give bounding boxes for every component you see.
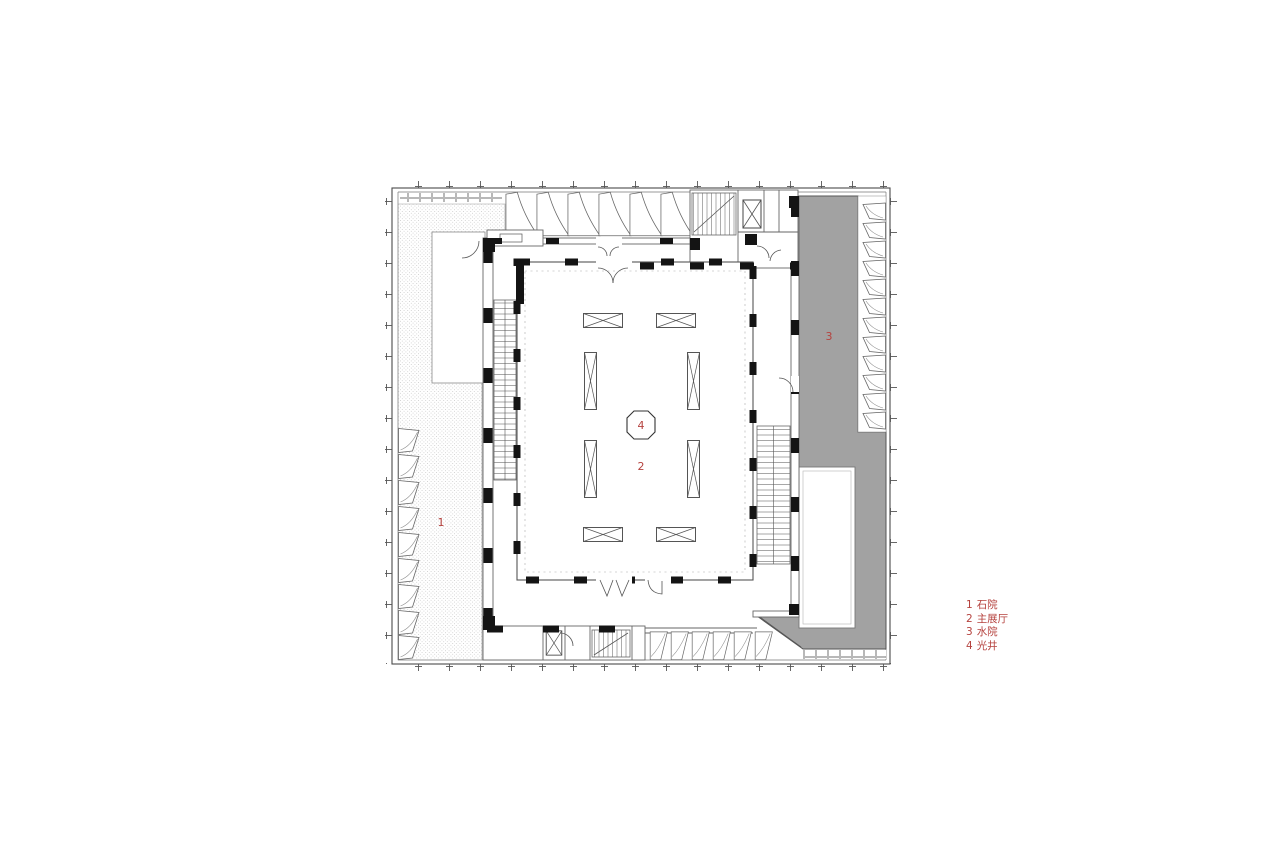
label-main-hall: 2 [638,460,645,473]
legend-item-main-hall: 2主展厅 [966,613,1008,627]
display-case [688,353,700,410]
legend-num: 4 [966,640,973,654]
legend-name: 石院 [977,599,998,611]
paving-strip-top [400,193,502,202]
legend-num: 2 [966,613,973,627]
shade-fins-right [858,196,886,432]
label-water-courtyard: 3 [826,330,833,343]
shade-fins-bottom [650,632,772,660]
display-case [657,528,696,542]
display-case [688,441,700,498]
south-elevator [546,631,562,655]
legend-name: 水院 [977,626,998,638]
legend-item-water-courtyard: 3水院 [966,626,1008,640]
legend-item-stone-courtyard: 1石院 [966,599,1008,613]
label-light-well: 4 [638,419,645,432]
paving-strip-bottom [803,650,886,659]
north-elevator [743,200,761,228]
legend-item-light-well: 4光井 [966,640,1008,654]
legend-name: 光井 [977,640,998,652]
display-case [584,314,623,328]
display-case [584,528,623,542]
floor-plan: 1 2 3 4 [0,0,1280,853]
floor-plan-drawing: 1 2 3 4 [0,0,1280,853]
legend-num: 1 [966,599,973,613]
shade-fins-top [506,192,693,235]
courtyard-terrace [432,232,485,383]
display-case [657,314,696,328]
display-case [585,353,597,410]
legend-name: 主展厅 [977,613,1009,625]
legend: 1石院 2主展厅 3水院 4光井 [966,599,1008,653]
label-stone-courtyard: 1 [438,516,445,529]
water-deck [799,467,855,628]
legend-num: 3 [966,626,973,640]
display-case [585,441,597,498]
main-exhibition-hall [517,262,753,580]
